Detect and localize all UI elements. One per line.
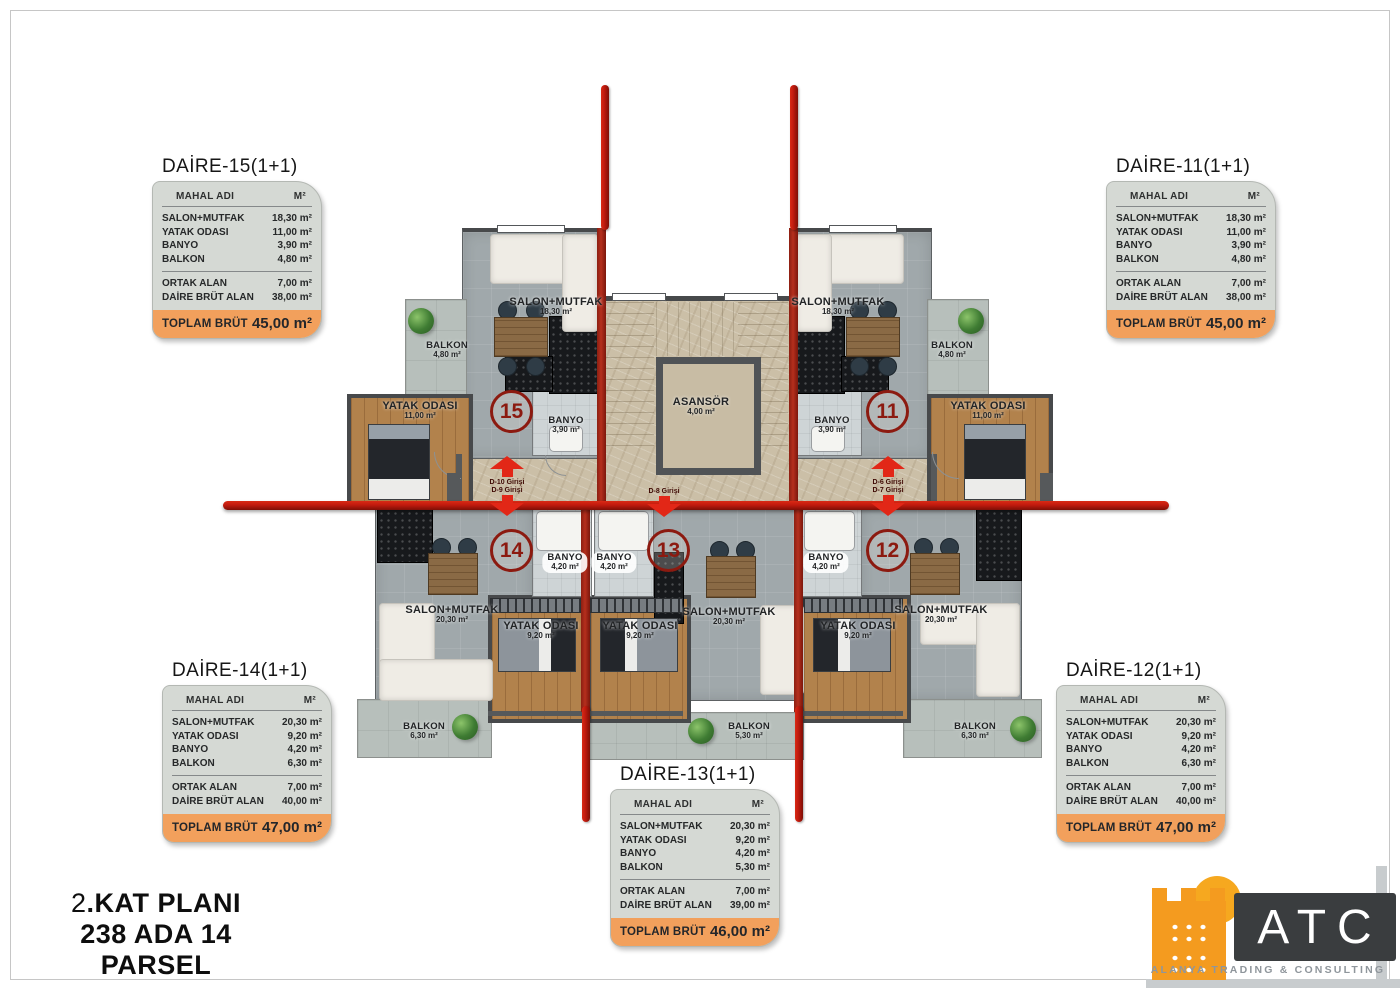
row-label: BALKON — [1066, 757, 1109, 771]
unit-card-body: MAHAL ADIM² SALON+MUTFAK18,30 m² YATAK O… — [1106, 181, 1276, 339]
card-header: MAHAL ADIM² — [1066, 693, 1216, 711]
unit15-sofa-chaise — [562, 234, 598, 332]
card-header: MAHAL ADIM² — [1116, 189, 1266, 207]
row-value: 7,00 m² — [1232, 277, 1266, 291]
row-label: DAİRE BRÜT ALAN — [620, 899, 712, 913]
row-value: 20,30 m² — [730, 820, 770, 834]
table-row: SALON+MUTFAK20,30 m² — [620, 820, 770, 834]
room-area: 18,30 m² — [509, 308, 602, 317]
section-line-top-left — [601, 85, 609, 230]
unit-card-daire-15: DAİRE-15(1+1) MAHAL ADIM² SALON+MUTFAK18… — [152, 156, 322, 339]
room-area: 11,00 m² — [950, 412, 1025, 421]
table-row: BALKON5,30 m² — [620, 861, 770, 875]
arrow-head-icon — [490, 456, 524, 469]
row-label: BANYO — [162, 239, 198, 253]
row-label: YATAK ODASI — [172, 730, 239, 744]
unit-badge-15: 15 — [490, 390, 533, 433]
arrow-head-icon — [871, 503, 905, 516]
total-label: TOPLAM BRÜT — [172, 822, 258, 834]
dining-chair — [498, 357, 517, 376]
entrance-arrow-down — [646, 496, 682, 517]
room-area: 5,30 m² — [728, 732, 770, 741]
room-label-yatak-12: YATAK ODASI9,20 m² — [820, 620, 895, 641]
card-header: MAHAL ADIM² — [620, 797, 770, 815]
unit-badge-14: 14 — [490, 529, 533, 572]
header-unit: M² — [294, 191, 306, 202]
red-wall-bottom-right — [794, 505, 803, 712]
plant — [408, 308, 434, 334]
total-value: 45,00 m² — [252, 315, 312, 332]
section-line-horizontal — [223, 501, 1169, 510]
table-row: ORTAK ALAN7,00 m² — [162, 277, 312, 291]
table-row: SALON+MUTFAK20,30 m² — [172, 716, 322, 730]
row-label: BANYO — [620, 847, 656, 861]
row-value: 20,30 m² — [282, 716, 322, 730]
room-label-asansor: ASANSÖR4,00 m² — [673, 396, 729, 417]
table-row: SALON+MUTFAK18,30 m² — [1116, 212, 1266, 226]
row-value: 11,00 m² — [273, 226, 312, 240]
unit12-shower — [804, 511, 855, 551]
unit14-shower — [536, 511, 587, 551]
row-value: 7,00 m² — [288, 781, 322, 795]
table-row: DAİRE BRÜT ALAN40,00 m² — [172, 795, 322, 809]
total-value: 45,00 m² — [1206, 315, 1266, 332]
arrow-head-icon — [871, 456, 905, 469]
bedroom-wall — [800, 711, 903, 716]
room-label-banyo-11: BANYO3,90 m² — [814, 416, 849, 435]
entrance-label-d10: D-10 Girişi — [489, 479, 524, 486]
window — [497, 225, 565, 233]
section-line-top-right — [790, 85, 798, 230]
row-label: ORTAK ALAN — [1066, 781, 1131, 795]
unit12-kitchen-counter — [976, 509, 1022, 581]
parcel-title: 238 ADA 14 PARSEL — [28, 919, 284, 981]
logo-wordmark-box: ATC — [1234, 893, 1396, 961]
row-value: 7,00 m² — [736, 885, 770, 899]
entrance-label-d8: D-8 Girişi — [648, 488, 679, 495]
table-row: YATAK ODASI9,20 m² — [172, 730, 322, 744]
unit-card-title: DAİRE-11(1+1) — [1116, 156, 1276, 178]
table-row: ORTAK ALAN7,00 m² — [1066, 781, 1216, 795]
row-label: BALKON — [162, 253, 205, 267]
row-label: BANYO — [1066, 743, 1102, 757]
row-label: DAİRE BRÜT ALAN — [1116, 291, 1208, 305]
row-label: ORTAK ALAN — [620, 885, 685, 899]
row-label: YATAK ODASI — [620, 834, 687, 848]
bedroom-wall — [488, 711, 585, 716]
row-value: 3,90 m² — [278, 239, 312, 253]
room-label-balkon-13: BALKON5,30 m² — [728, 722, 770, 741]
room-label-banyo-12: BANYO4,20 m² — [803, 552, 848, 573]
entrance-arrow-down — [489, 495, 525, 516]
room-area: 3,90 m² — [548, 426, 583, 435]
entrance-label-d9: D-9 Girişi — [491, 487, 522, 494]
entrance-arrow-up — [489, 456, 525, 477]
unit14-dining-table — [428, 553, 478, 595]
unit-card-body: MAHAL ADIM² SALON+MUTFAK20,30 m² YATAK O… — [162, 685, 332, 843]
room-label-yatak-13: YATAK ODASI9,20 m² — [602, 620, 677, 641]
table-row: YATAK ODASI11,00 m² — [1116, 226, 1266, 240]
unit15-bed — [368, 424, 430, 500]
row-value: 9,20 m² — [1182, 730, 1216, 744]
unit-card-daire-14: DAİRE-14(1+1) MAHAL ADIM² SALON+MUTFAK20… — [162, 660, 332, 843]
dining-chair — [526, 357, 545, 376]
total-row: TOPLAM BRÜT47,00 m² — [1057, 814, 1225, 842]
bed-blanket — [369, 439, 429, 479]
bed-blanket — [965, 439, 1025, 479]
unit14-wardrobe — [490, 598, 585, 613]
room-label-yatak-14: YATAK ODASI9,20 m² — [503, 620, 578, 641]
section-line-bottom-left — [582, 706, 590, 822]
row-value: 39,00 m² — [730, 899, 770, 913]
unit-card-title: DAİRE-15(1+1) — [162, 156, 322, 178]
logo-tagline: ALANYA TRADING & CONSULTING — [1140, 964, 1396, 976]
floor-suffix: .KAT PLANI — [87, 888, 242, 918]
room-label-banyo-13: BANYO4,20 m² — [591, 552, 636, 573]
window — [612, 293, 666, 301]
room-area: 20,30 m² — [682, 618, 775, 627]
unit13-wardrobe — [589, 598, 683, 613]
row-label: ORTAK ALAN — [1116, 277, 1181, 291]
entry-hall-left — [462, 454, 600, 505]
room-label-salon-13: SALON+MUTFAK20,30 m² — [682, 606, 775, 627]
room-area: 11,00 m² — [382, 412, 457, 421]
room-label-banyo-14: BANYO4,20 m² — [542, 552, 587, 573]
row-label: SALON+MUTFAK — [162, 212, 245, 226]
row-value: 6,30 m² — [1182, 757, 1216, 771]
plan-title-block: 2.KAT PLANI 238 ADA 14 PARSEL — [28, 888, 284, 981]
room-label-salon-12: SALON+MUTFAK20,30 m² — [894, 604, 987, 625]
row-label: BALKON — [620, 861, 663, 875]
unit14-sofa-chaise — [379, 659, 493, 701]
table-row: YATAK ODASI9,20 m² — [1066, 730, 1216, 744]
wall-stub — [447, 473, 460, 504]
row-label: YATAK ODASI — [1116, 226, 1183, 240]
unit-card-title: DAİRE-14(1+1) — [172, 660, 332, 682]
row-label: DAİRE BRÜT ALAN — [162, 291, 254, 305]
unit-card-title: DAİRE-13(1+1) — [620, 764, 780, 786]
arrow-stem — [659, 496, 670, 504]
plant — [1010, 716, 1036, 742]
row-label: YATAK ODASI — [1066, 730, 1133, 744]
row-label: BALKON — [172, 757, 215, 771]
room-area: 9,20 m² — [503, 632, 578, 641]
total-label: TOPLAM BRÜT — [620, 926, 706, 938]
header-name: MAHAL ADI — [1080, 695, 1138, 706]
room-area: 4,80 m² — [931, 351, 973, 360]
castle-windows — [1168, 921, 1210, 945]
table-row: BANYO4,20 m² — [1066, 743, 1216, 757]
row-value: 9,20 m² — [736, 834, 770, 848]
row-value: 7,00 m² — [1182, 781, 1216, 795]
arrow-stem — [883, 495, 894, 503]
room-label-salon-14: SALON+MUTFAK20,30 m² — [405, 604, 498, 625]
total-value: 47,00 m² — [262, 819, 322, 836]
floor-plan-title: 2.KAT PLANI — [28, 888, 284, 919]
room-label-salon-15: SALON+MUTFAK18,30 m² — [509, 296, 602, 317]
plant — [958, 308, 984, 334]
arrow-stem — [502, 469, 513, 477]
entrance-label-d6: D-6 Girişi — [872, 479, 903, 486]
unit11-bed — [964, 424, 1026, 500]
row-label: SALON+MUTFAK — [172, 716, 255, 730]
row-value: 9,20 m² — [288, 730, 322, 744]
unit14-kitchen-counter — [377, 509, 433, 563]
unit-card-daire-11: DAİRE-11(1+1) MAHAL ADIM² SALON+MUTFAK18… — [1106, 156, 1276, 339]
room-area: 3,90 m² — [814, 426, 849, 435]
card-header: MAHAL ADIM² — [162, 189, 312, 207]
row-value: 5,30 m² — [736, 861, 770, 875]
entrance-arrow-up — [870, 456, 906, 477]
table-row: DAİRE BRÜT ALAN38,00 m² — [1116, 291, 1266, 305]
unit-card-body: MAHAL ADIM² SALON+MUTFAK20,30 m² YATAK O… — [1056, 685, 1226, 843]
unit13-shower — [598, 511, 649, 551]
total-label: TOPLAM BRÜT — [1066, 822, 1152, 834]
row-value: 18,30 m² — [1226, 212, 1266, 226]
room-area: 4,20 m² — [596, 563, 631, 572]
section-line-bottom-right — [795, 706, 803, 822]
room-area: 9,20 m² — [820, 632, 895, 641]
bed-foot — [965, 479, 1025, 499]
row-value: 3,90 m² — [1232, 239, 1266, 253]
plant — [688, 718, 714, 744]
red-wall-top-right — [789, 228, 798, 505]
room-label-banyo-15: BANYO3,90 m² — [548, 416, 583, 435]
room-label-balkon-12: BALKON6,30 m² — [954, 722, 996, 741]
stair-treads-top — [656, 302, 738, 356]
room-label-balkon-15: BALKON4,80 m² — [426, 341, 468, 360]
unit11-sofa-chaise — [796, 234, 832, 332]
room-label-balkon-14: BALKON6,30 m² — [403, 722, 445, 741]
room-area: 9,20 m² — [602, 632, 677, 641]
table-row: BANYO3,90 m² — [162, 239, 312, 253]
unit15-dining-table — [494, 317, 548, 357]
table-row: YATAK ODASI9,20 m² — [620, 834, 770, 848]
table-row: ORTAK ALAN7,00 m² — [172, 781, 322, 795]
row-value: 40,00 m² — [282, 795, 322, 809]
table-row: BANYO4,20 m² — [172, 743, 322, 757]
unit-card-title: DAİRE-12(1+1) — [1066, 660, 1226, 682]
logo-name: ATC — [1247, 900, 1382, 955]
header-name: MAHAL ADI — [176, 191, 234, 202]
table-row: DAİRE BRÜT ALAN39,00 m² — [620, 899, 770, 913]
logo-decor-bar-bottom — [1146, 979, 1400, 988]
header-name: MAHAL ADI — [186, 695, 244, 706]
unit11-dining-table — [846, 317, 900, 357]
room-area: 4,20 m² — [547, 563, 582, 572]
room-area: 4,20 m² — [808, 563, 843, 572]
total-value: 46,00 m² — [710, 923, 770, 940]
row-value: 4,80 m² — [1232, 253, 1266, 267]
room-area: 20,30 m² — [894, 616, 987, 625]
row-label: BALKON — [1116, 253, 1159, 267]
row-label: ORTAK ALAN — [172, 781, 237, 795]
row-label: DAİRE BRÜT ALAN — [172, 795, 264, 809]
room-label-yatak-15: YATAK ODASI11,00 m² — [382, 400, 457, 421]
arrow-head-icon — [490, 503, 524, 516]
wall-stub — [1040, 473, 1053, 504]
row-value: 4,20 m² — [288, 743, 322, 757]
unit-card-daire-13: DAİRE-13(1+1) MAHAL ADIM² SALON+MUTFAK20… — [610, 764, 780, 947]
total-row: TOPLAM BRÜT45,00 m² — [1107, 310, 1275, 338]
company-logo: ATC ALANYA TRADING & CONSULTING — [1140, 860, 1400, 990]
room-area: 18,30 m² — [791, 308, 884, 317]
row-value: 40,00 m² — [1176, 795, 1216, 809]
row-label: ORTAK ALAN — [162, 277, 227, 291]
row-label: BANYO — [1116, 239, 1152, 253]
unit12-dining-table — [910, 553, 960, 595]
dining-chair — [850, 357, 869, 376]
header-unit: M² — [304, 695, 316, 706]
header-name: MAHAL ADI — [634, 799, 692, 810]
table-row: BANYO3,90 m² — [1116, 239, 1266, 253]
header-unit: M² — [752, 799, 764, 810]
total-row: TOPLAM BRÜT46,00 m² — [611, 918, 779, 946]
table-row: BALKON6,30 m² — [172, 757, 322, 771]
room-area: 6,30 m² — [954, 732, 996, 741]
entrance-label-d7: D-7 Girişi — [872, 487, 903, 494]
table-row: YATAK ODASI11,00 m² — [162, 226, 312, 240]
row-label: SALON+MUTFAK — [1066, 716, 1149, 730]
bed-pillow — [965, 425, 1025, 439]
unit12-wardrobe — [802, 598, 903, 613]
red-wall-top-left — [597, 228, 606, 505]
floor-number: 2 — [71, 888, 87, 918]
table-row: BANYO4,20 m² — [620, 847, 770, 861]
unit-badge-12: 12 — [866, 529, 909, 572]
bed-pillow — [369, 425, 429, 439]
entry-hall-right — [791, 454, 931, 505]
header-name: MAHAL ADI — [1130, 191, 1188, 202]
row-value: 4,80 m² — [278, 253, 312, 267]
unit-card-body: MAHAL ADIM² SALON+MUTFAK18,30 m² YATAK O… — [152, 181, 322, 339]
row-value: 18,30 m² — [272, 212, 312, 226]
unit13-dining-table — [706, 556, 756, 598]
row-value: 6,30 m² — [288, 757, 322, 771]
row-label: SALON+MUTFAK — [1116, 212, 1199, 226]
row-label: DAİRE BRÜT ALAN — [1066, 795, 1158, 809]
room-label-salon-11: SALON+MUTFAK18,30 m² — [791, 296, 884, 317]
row-value: 11,00 m² — [1227, 226, 1266, 240]
unit-card-body: MAHAL ADIM² SALON+MUTFAK20,30 m² YATAK O… — [610, 789, 780, 947]
total-label: TOPLAM BRÜT — [162, 318, 248, 330]
window — [829, 225, 897, 233]
arrow-head-icon — [647, 504, 681, 517]
dining-chair — [878, 357, 897, 376]
table-row: DAİRE BRÜT ALAN38,00 m² — [162, 291, 312, 305]
total-row: TOPLAM BRÜT47,00 m² — [163, 814, 331, 842]
plant — [452, 714, 478, 740]
window — [724, 293, 778, 301]
row-value: 4,20 m² — [736, 847, 770, 861]
arrow-stem — [883, 469, 894, 477]
table-row: BALKON4,80 m² — [1116, 253, 1266, 267]
entrance-arrow-down — [870, 495, 906, 516]
room-area: 20,30 m² — [405, 616, 498, 625]
stair-treads-left — [604, 302, 654, 452]
bed-foot — [369, 479, 429, 499]
row-label: BANYO — [172, 743, 208, 757]
row-label: SALON+MUTFAK — [620, 820, 703, 834]
table-row: BALKON4,80 m² — [162, 253, 312, 267]
unit-badge-11: 11 — [866, 390, 909, 433]
unit-badge-13: 13 — [647, 529, 690, 572]
header-unit: M² — [1248, 191, 1260, 202]
card-header: MAHAL ADIM² — [172, 693, 322, 711]
row-label: YATAK ODASI — [162, 226, 229, 240]
room-area: 4,80 m² — [426, 351, 468, 360]
row-value: 38,00 m² — [272, 291, 312, 305]
total-label: TOPLAM BRÜT — [1116, 318, 1202, 330]
room-label-balkon-11: BALKON4,80 m² — [931, 341, 973, 360]
row-value: 7,00 m² — [278, 277, 312, 291]
table-row: ORTAK ALAN7,00 m² — [1116, 277, 1266, 291]
table-row: ORTAK ALAN7,00 m² — [620, 885, 770, 899]
row-value: 38,00 m² — [1226, 291, 1266, 305]
table-row: SALON+MUTFAK18,30 m² — [162, 212, 312, 226]
room-area: 6,30 m² — [403, 732, 445, 741]
red-wall-bottom-left — [581, 505, 590, 712]
row-value: 20,30 m² — [1176, 716, 1216, 730]
row-value: 4,20 m² — [1182, 743, 1216, 757]
page: { "colors": { "section_line_red": "#c01a… — [0, 0, 1400, 990]
header-unit: M² — [1198, 695, 1210, 706]
total-row: TOPLAM BRÜT45,00 m² — [153, 310, 321, 338]
total-value: 47,00 m² — [1156, 819, 1216, 836]
unit-card-daire-12: DAİRE-12(1+1) MAHAL ADIM² SALON+MUTFAK20… — [1056, 660, 1226, 843]
table-row: DAİRE BRÜT ALAN40,00 m² — [1066, 795, 1216, 809]
arrow-stem — [502, 495, 513, 503]
bedroom-wall — [587, 711, 683, 716]
room-label-yatak-11: YATAK ODASI11,00 m² — [950, 400, 1025, 421]
room-area: 4,00 m² — [673, 408, 729, 417]
table-row: SALON+MUTFAK20,30 m² — [1066, 716, 1216, 730]
table-row: BALKON6,30 m² — [1066, 757, 1216, 771]
